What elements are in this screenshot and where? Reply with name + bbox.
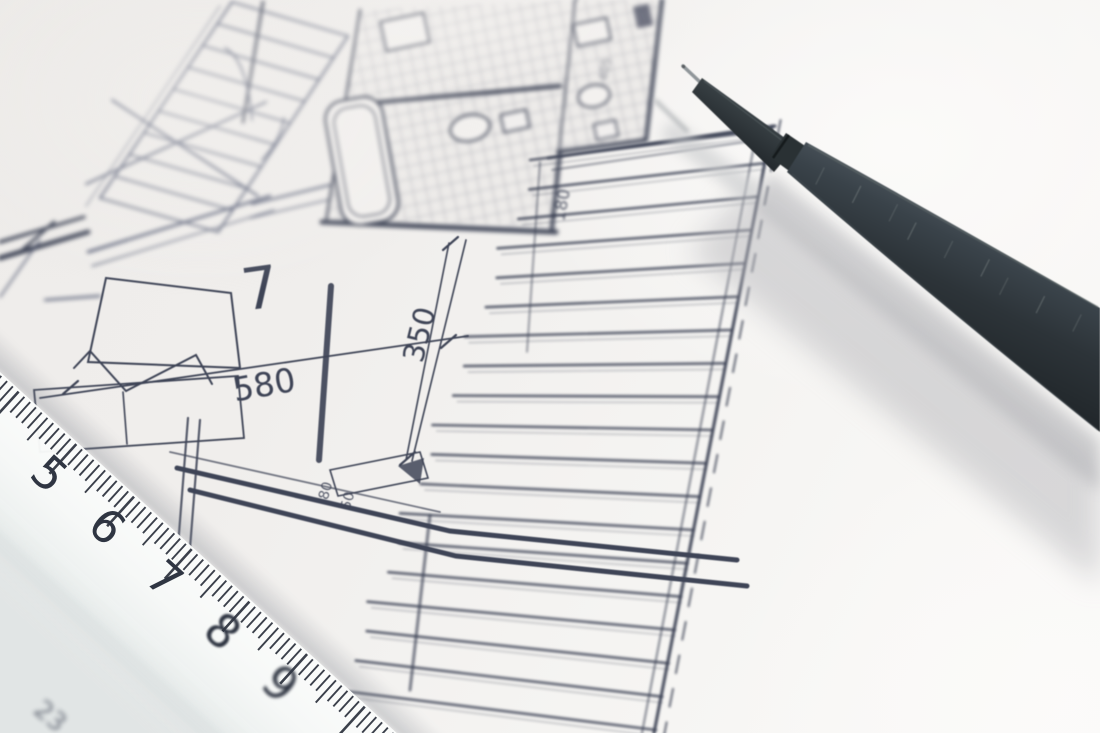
fineliner-pen: [0, 0, 1100, 733]
pen-needle-tip: [683, 66, 700, 82]
pen-needle-point: [682, 65, 686, 69]
photo-scene: 405 180: [0, 0, 1100, 733]
